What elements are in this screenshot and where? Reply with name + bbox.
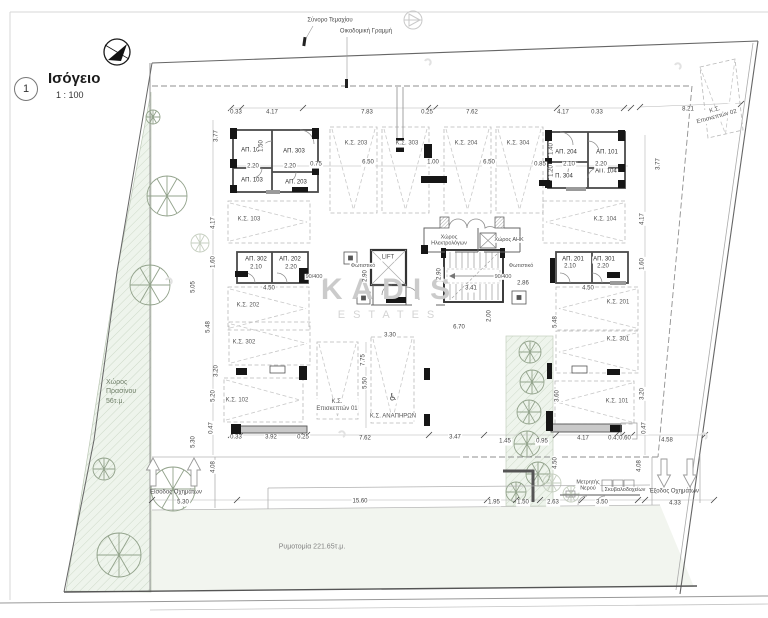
utility-rooms (421, 217, 520, 254)
parking-space (496, 127, 543, 213)
drive-lines (215, 455, 700, 509)
parking-space-marking (384, 129, 427, 210)
floor-plan-sheet: 1 Ισόγειο 1 : 100 Σύνορο Τεμαχίου Οικοδο… (0, 0, 768, 618)
floor-plan-drawing (0, 0, 768, 618)
parking-space-marking (546, 203, 623, 241)
parking-space (229, 322, 310, 365)
service-shaft (397, 87, 403, 138)
parking-space-marking (226, 380, 300, 420)
column (396, 138, 404, 152)
columns (236, 363, 620, 426)
north-arrow-icon (104, 39, 130, 65)
storage-block-mid-east (550, 252, 628, 285)
parking-space (317, 342, 358, 419)
parking-space-marking (498, 129, 541, 210)
parking-space (444, 127, 491, 213)
parking-space (371, 337, 414, 423)
parking-space-marking (230, 203, 307, 241)
parking-space (543, 201, 625, 243)
parking-space (556, 331, 638, 373)
road-lines (0, 596, 768, 610)
column (424, 144, 432, 158)
parking-space (330, 127, 377, 213)
street-widening-area (64, 505, 694, 592)
staircase (441, 248, 505, 302)
parking-space (224, 378, 303, 422)
logo-smudges (166, 59, 707, 439)
storage-block-ne (539, 130, 625, 191)
vehicle-exit-arrows (658, 459, 697, 487)
parking-space-marking (446, 129, 489, 210)
parking-space (700, 59, 743, 138)
storage-block-nw (230, 128, 319, 194)
parking-space (382, 127, 429, 213)
parking-space (555, 381, 634, 424)
parking-space-marking (332, 129, 375, 210)
survey-marker-icon (404, 11, 422, 29)
storage-block-mid-west (235, 252, 308, 283)
parking-space-marking (559, 333, 636, 371)
vehicle-entrance-arrows (147, 458, 201, 486)
parking-space-marking (559, 289, 636, 328)
parking-space-marking (373, 339, 412, 420)
column (421, 176, 447, 183)
planter-strip (506, 336, 553, 506)
lift-shaft (371, 250, 406, 305)
parking-space-marking (700, 59, 735, 134)
parking-space-marking (319, 344, 356, 416)
parking-space (228, 287, 309, 330)
parking-space (228, 201, 310, 243)
parking-space (556, 287, 638, 330)
entrance-lobby (371, 287, 445, 305)
parking-space-marking (558, 383, 632, 422)
